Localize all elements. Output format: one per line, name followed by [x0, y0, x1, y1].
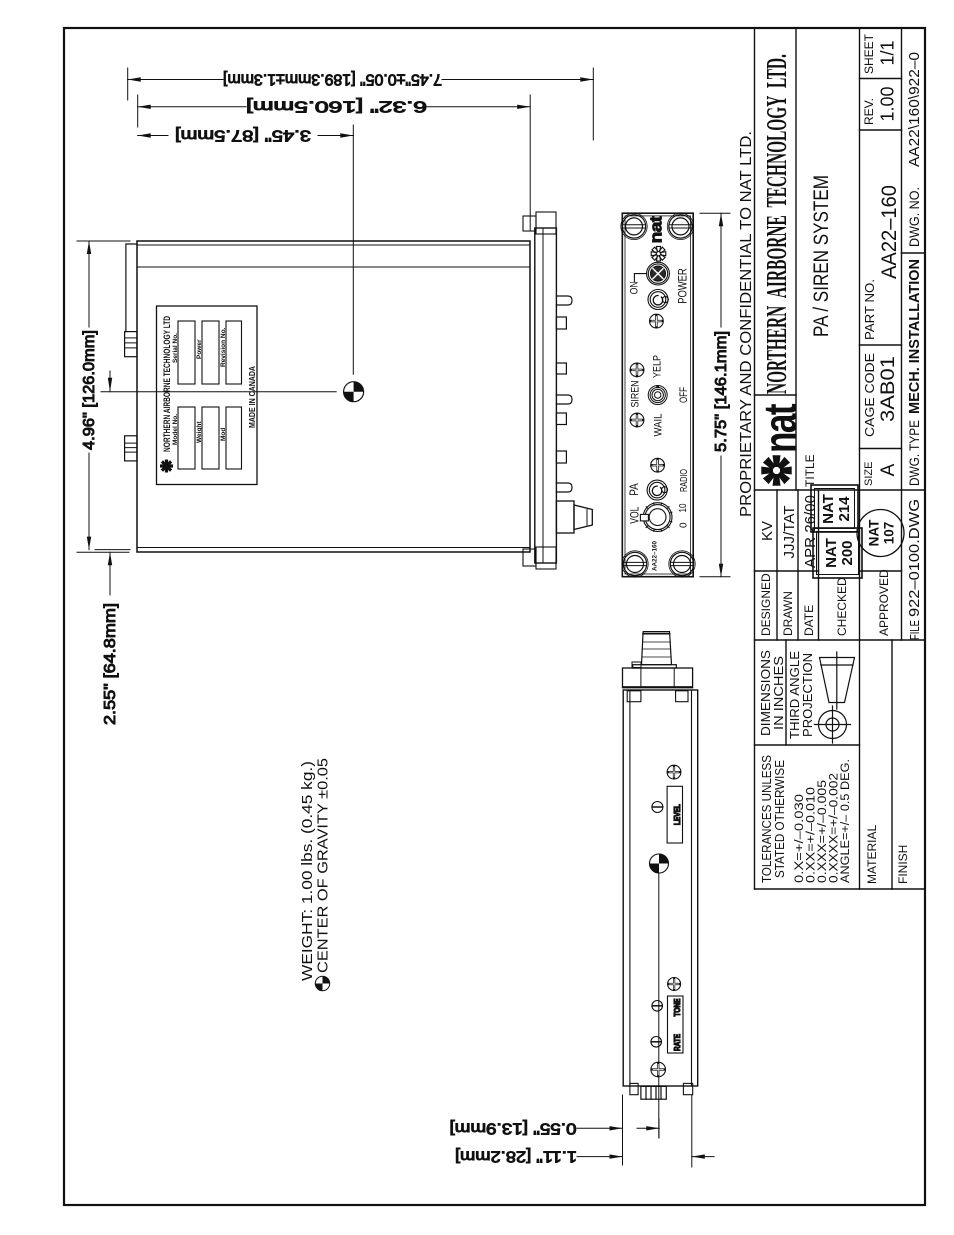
svg-text:2.55" [64.8mm]: 2.55" [64.8mm] — [102, 603, 119, 725]
svg-text:DESIGNED: DESIGNED — [759, 573, 773, 636]
svg-text:SHEET: SHEET — [862, 33, 876, 74]
svg-text:AA22\160\922–0: AA22\160\922–0 — [907, 52, 923, 167]
svg-text:nat: nat — [754, 404, 806, 453]
svg-text:PA: PA — [629, 483, 641, 496]
svg-text:CAGE CODE: CAGE CODE — [862, 353, 877, 437]
svg-text:214: 214 — [836, 496, 853, 522]
svg-text:MADE IN CANADA: MADE IN CANADA — [248, 366, 257, 428]
svg-text:0.XXX=+/–0.005: 0.XXX=+/–0.005 — [817, 780, 829, 883]
svg-text:DATE: DATE — [802, 605, 816, 636]
svg-text:VOL: VOL — [630, 506, 642, 523]
svg-text:0.X=+/–0.030: 0.X=+/–0.030 — [794, 794, 806, 883]
svg-text:7.45"±0.05" [189.3mm±1.3mm]: 7.45"±0.05" [189.3mm±1.3mm] — [223, 71, 442, 88]
svg-text:FILE: FILE — [907, 620, 922, 640]
svg-text:PROJECTION: PROJECTION — [801, 653, 815, 737]
svg-text:YELP: YELP — [652, 355, 664, 378]
svg-text:0.XX=+/–0.010: 0.XX=+/–0.010 — [806, 787, 818, 883]
svg-text:LEVEL: LEVEL — [673, 804, 682, 825]
svg-text:REV.: REV. — [862, 98, 876, 125]
svg-text:Revision No.: Revision No. — [220, 327, 227, 367]
svg-text:KV: KV — [759, 521, 776, 541]
svg-text:1.00: 1.00 — [878, 86, 898, 121]
svg-text:TOLERANCES UNLESS: TOLERANCES UNLESS — [760, 755, 774, 883]
svg-text:DWG. NO.: DWG. NO. — [907, 187, 922, 247]
svg-text:0.55" [13.9mm]: 0.55" [13.9mm] — [450, 1120, 577, 1137]
svg-text:DIMENSIONS: DIMENSIONS — [759, 650, 773, 736]
svg-text:NAT: NAT — [820, 494, 837, 524]
svg-text:NAT: NAT — [867, 519, 882, 546]
svg-text:STATED OTHERWISE: STATED OTHERWISE — [773, 760, 787, 878]
svg-text:Mod: Mod — [220, 428, 227, 441]
svg-text:0: 0 — [679, 522, 690, 528]
svg-text:RADIO: RADIO — [679, 469, 690, 492]
svg-text:RATE: RATE — [673, 1033, 682, 1051]
svg-text:922–0100.DWG: 922–0100.DWG — [907, 499, 923, 617]
svg-text:200: 200 — [839, 540, 856, 565]
svg-text:4.96" [126.0mm]: 4.96" [126.0mm] — [81, 330, 98, 450]
svg-text:WAIL: WAIL — [653, 414, 665, 437]
svg-text:DRAWN: DRAWN — [781, 591, 795, 636]
svg-text:ON: ON — [629, 281, 641, 294]
svg-text:NORTHERN AIRBORNE TECHNOLOGY: NORTHERN AIRBORNE TECHNOLOGY LTD. — [762, 54, 793, 394]
svg-text:6.32" [160.5mm]: 6.32" [160.5mm] — [246, 98, 427, 115]
svg-text:MECH. INSTALLATION: MECH. INSTALLATION — [907, 259, 923, 414]
svg-text:TITLE: TITLE — [803, 454, 817, 487]
svg-text:SIZE: SIZE — [863, 462, 875, 486]
svg-text:Model No.: Model No. — [172, 414, 179, 445]
svg-text:Weight: Weight — [196, 421, 203, 443]
svg-text:OFF: OFF — [678, 387, 690, 403]
svg-text:CHECKED: CHECKED — [835, 577, 849, 636]
svg-text:SIREN: SIREN — [630, 380, 642, 407]
svg-text:POWER: POWER — [677, 268, 689, 304]
svg-text:5.75" [146.1mm]: 5.75" [146.1mm] — [713, 331, 730, 452]
svg-text:PROPRIETARY AND CONFIDENTIAL T: PROPRIETARY AND CONFIDENTIAL TO NAT LTD. — [738, 131, 755, 517]
svg-text:MATERIAL: MATERIAL — [865, 825, 879, 884]
svg-text:ANGLE=+/– 0.5 DEG.: ANGLE=+/– 0.5 DEG. — [840, 759, 852, 883]
svg-text:1.11" [28.2mm]: 1.11" [28.2mm] — [455, 1148, 577, 1165]
svg-text:0.XXXX=+/–0.002: 0.XXXX=+/–0.002 — [829, 773, 841, 883]
svg-text:CENTER OF GRAVITY ±0.05: CENTER OF GRAVITY ±0.05 — [315, 758, 332, 973]
svg-text:10: 10 — [678, 503, 689, 512]
svg-text:JJJ/TAT: JJJ/TAT — [781, 506, 798, 559]
svg-text:IN INCHES: IN INCHES — [772, 656, 786, 730]
svg-text:PART NO.: PART NO. — [862, 279, 877, 340]
svg-text:Serial No.: Serial No. — [172, 333, 179, 363]
svg-text:NORTHERN AIRBORNE TECHNOLOGY L: NORTHERN AIRBORNE TECHNOLOGY LTD — [162, 316, 172, 452]
svg-text:AA22–160: AA22–160 — [652, 541, 659, 571]
svg-text:FINISH: FINISH — [896, 845, 910, 884]
svg-text:AA22–160: AA22–160 — [878, 185, 901, 279]
svg-text:DWG. TYPE: DWG. TYPE — [907, 420, 922, 486]
svg-text:nat: nat — [647, 215, 666, 243]
svg-text:PA / SIREN SYSTEM: PA / SIREN SYSTEM — [810, 175, 833, 337]
svg-text:NAT: NAT — [823, 538, 840, 568]
svg-text:THIRD ANGLE: THIRD ANGLE — [788, 651, 802, 739]
svg-text:APPROVED: APPROVED — [877, 569, 891, 636]
svg-text:WEIGHT: 1.00 lbs. (0.45 kg.): WEIGHT: 1.00 lbs. (0.45 kg.) — [299, 761, 316, 981]
svg-text:3AB01: 3AB01 — [878, 356, 899, 422]
svg-text:A: A — [878, 463, 899, 476]
svg-text:3.45" [87.5mm]: 3.45" [87.5mm] — [175, 127, 311, 144]
svg-text:Power: Power — [196, 339, 203, 359]
svg-text:1/1: 1/1 — [878, 40, 898, 65]
svg-text:107: 107 — [882, 522, 897, 545]
svg-text:TONE: TONE — [673, 998, 682, 1017]
